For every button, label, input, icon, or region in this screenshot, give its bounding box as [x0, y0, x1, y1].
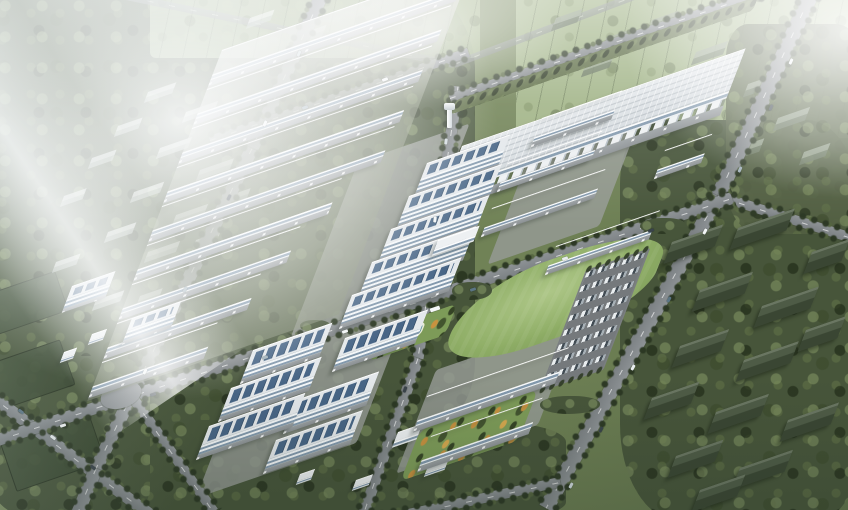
warehouse-apron: [148, 156, 383, 242]
warehouse-apron: [193, 35, 439, 125]
warehouse-row: [148, 126, 395, 243]
warehouse-roof: [123, 226, 301, 308]
aerial-render-scene: [0, 0, 848, 510]
warehouse-apron: [118, 257, 289, 321]
warehouse-apron: [178, 76, 421, 165]
warehouse-roof: [168, 86, 414, 192]
warehouse-facade: [150, 150, 385, 236]
warehouse-roof: [138, 178, 342, 269]
warehouse-facade: [120, 250, 291, 314]
warehouse-facade: [135, 202, 332, 275]
warehouse-facade: [180, 70, 423, 159]
warehouse-roof: [183, 45, 433, 152]
warehouse-apron: [163, 116, 402, 203]
warehouse-roof: [153, 126, 395, 230]
warehouse-apron: [133, 208, 330, 281]
warehouse-facade: [165, 110, 404, 197]
warehouse-row: [163, 86, 413, 204]
water-tower: [447, 106, 452, 128]
